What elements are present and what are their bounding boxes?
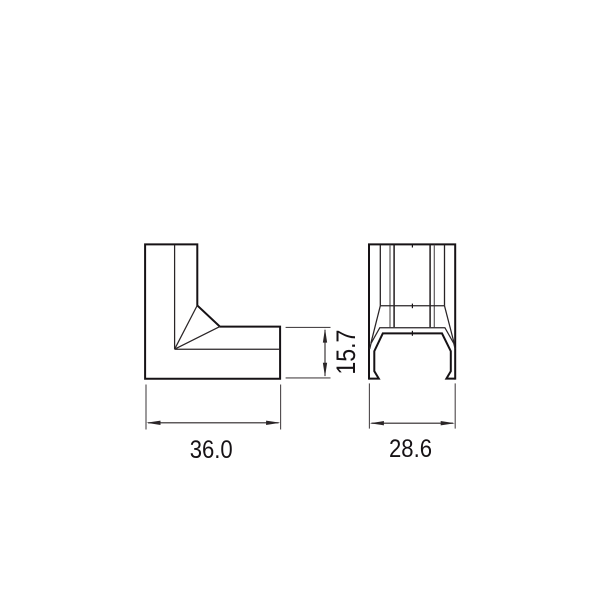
svg-text:15.7: 15.7 (331, 330, 361, 375)
svg-text:36.0: 36.0 (190, 436, 233, 464)
svg-text:28.6: 28.6 (389, 435, 432, 463)
